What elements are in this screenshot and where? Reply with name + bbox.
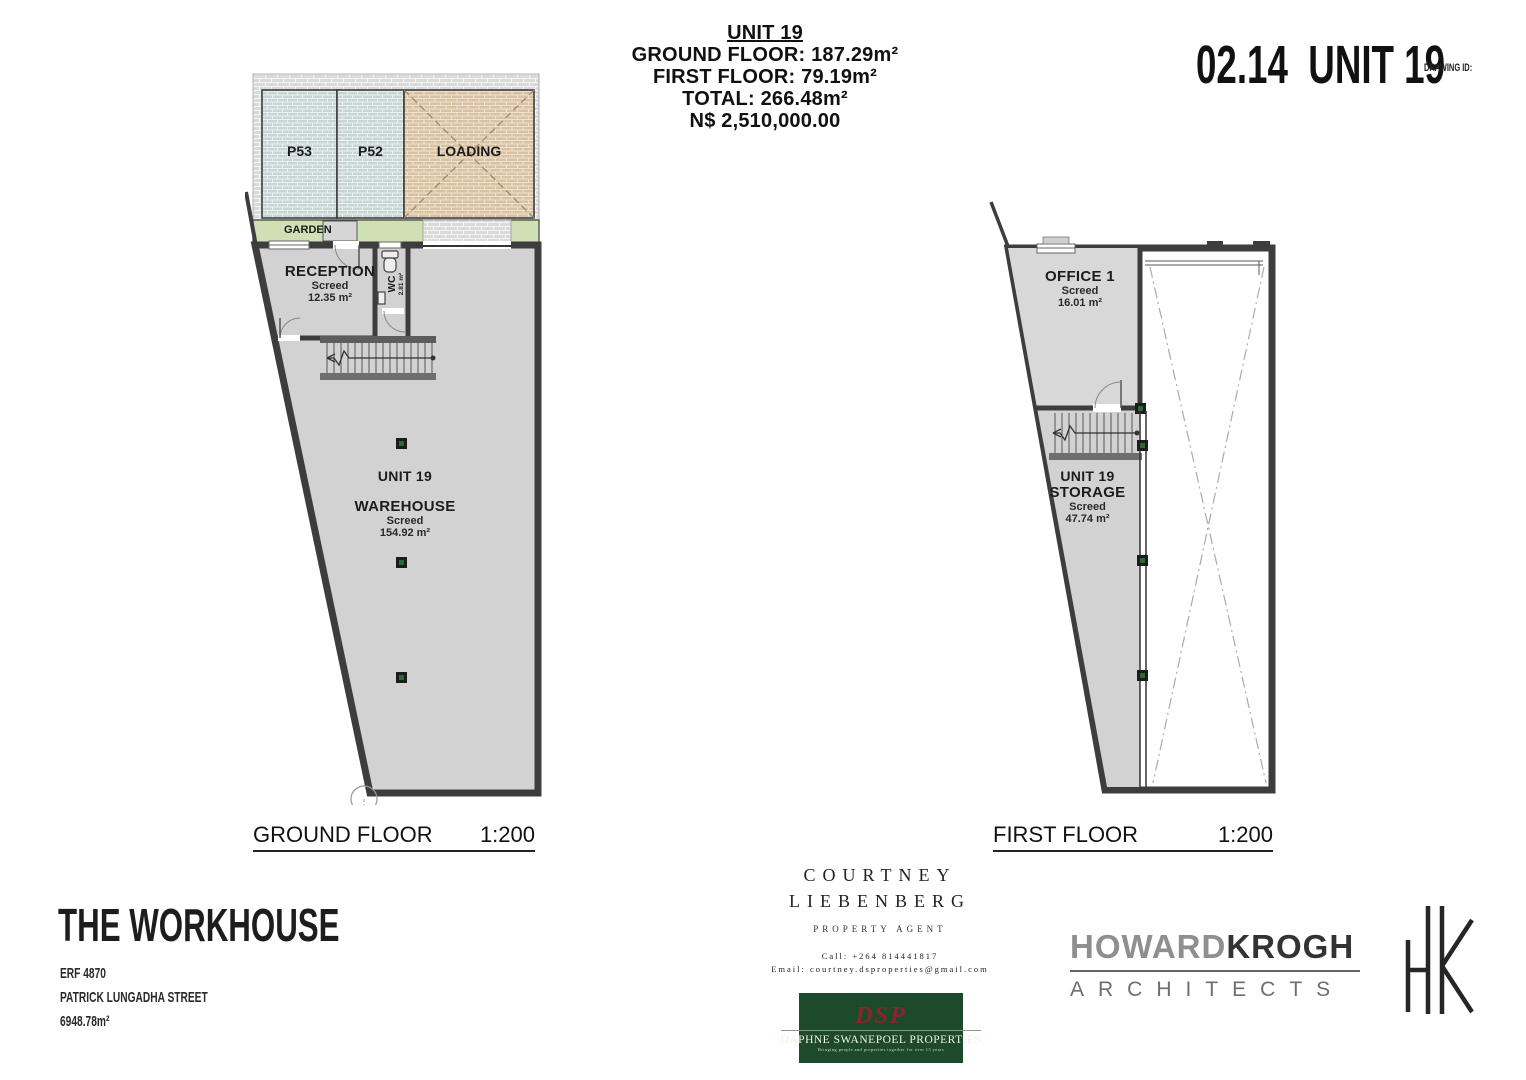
- agent-block: COURTNEY LIEBENBERG PROPERTY AGENT Call:…: [740, 862, 1020, 976]
- unit19-label: UNIT 19: [330, 468, 480, 484]
- agent-role: PROPERTY AGENT: [740, 924, 1020, 934]
- dsp-name: DAPHNE SWANEPOEL PROPERTIES: [781, 1030, 982, 1046]
- architects-block: HOWARDKROGH ARCHITECTS: [1070, 928, 1360, 1002]
- agent-name-line2: LIEBENBERG: [740, 888, 1020, 914]
- unit-spec-block: UNIT 19 GROUND FLOOR: 187.29m² FIRST FLO…: [540, 22, 990, 132]
- office-label: OFFICE 1 Screed 16.01 m²: [1020, 268, 1140, 309]
- project-details: ERF 4870 PATRICK LUNGADHA STREET 6948.78…: [60, 962, 277, 1034]
- ground-floor-caption: GROUND FLOOR 1:200: [253, 822, 535, 852]
- wc-label: WC 2.81 m²: [387, 264, 405, 304]
- ground-floor-area: GROUND FLOOR: 187.29m²: [540, 44, 990, 66]
- project-street: PATRICK LUNGADHA STREET: [60, 986, 208, 1010]
- agent-phone: Call: +264 814441817: [740, 950, 1020, 963]
- ground-floor-plan: [245, 70, 545, 805]
- dsp-monogram: DSP: [855, 1005, 906, 1027]
- parking-label-p53: P53: [262, 143, 337, 159]
- drawing-sheet: UNIT 19 GROUND FLOOR: 187.29m² FIRST FLO…: [0, 0, 1526, 1080]
- drawing-number: 02.14: [1196, 35, 1288, 95]
- garden-label: GARDEN: [284, 224, 332, 236]
- loading-label: LOADING: [404, 143, 534, 159]
- reception-label: RECEPTION Screed 12.35 m²: [270, 263, 390, 304]
- price: N$ 2,510,000.00: [540, 110, 990, 132]
- parking-label-p52: P52: [337, 143, 404, 159]
- agent-name-line1: COURTNEY: [740, 862, 1020, 888]
- architects-subtitle: ARCHITECTS: [1070, 978, 1360, 1002]
- first-floor-area: FIRST FLOOR: 79.19m²: [540, 66, 990, 88]
- dsp-logo: DSP DAPHNE SWANEPOEL PROPERTIES Bringing…: [799, 993, 963, 1063]
- dsp-tagline: Bringing people and properties together …: [818, 1047, 944, 1052]
- unit-title: UNIT 19: [540, 22, 990, 44]
- drawing-id-label: DRAWING ID:: [1424, 62, 1495, 74]
- architects-name-part2: KROGH: [1226, 928, 1354, 965]
- project-name: THE WORKHOUSE: [58, 898, 472, 952]
- hk-monogram-icon: [1392, 900, 1476, 1020]
- storage-label: UNIT 19 STORAGE Screed 47.74 m²: [1020, 468, 1155, 525]
- first-floor-caption: FIRST FLOOR 1:200: [993, 822, 1273, 852]
- warehouse-label: WAREHOUSE Screed 154.92 m²: [330, 498, 480, 539]
- project-site-area: 6948.78m²: [60, 1010, 109, 1034]
- architects-name-part1: HOWARD: [1070, 928, 1226, 965]
- project-erf: ERF 4870: [60, 962, 106, 986]
- agent-email: Email: courtney.dsproperties@gmail.com: [740, 963, 1020, 976]
- total-area: TOTAL: 266.48m²: [540, 88, 990, 110]
